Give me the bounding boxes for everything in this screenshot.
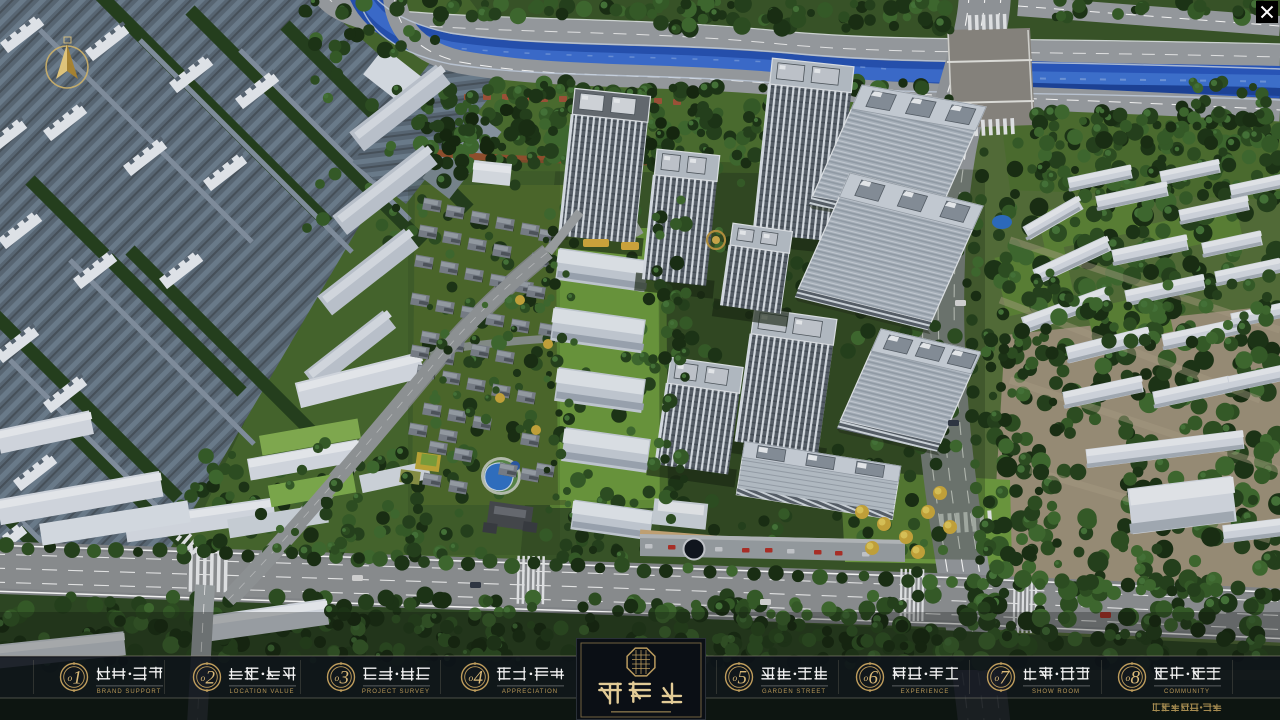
svg-text:1: 1 xyxy=(73,668,83,689)
svg-text:APPRECIATION: APPRECIATION xyxy=(502,689,558,695)
svg-text:8: 8 xyxy=(1131,668,1141,689)
svg-text:COMMUNITY: COMMUNITY xyxy=(1164,689,1210,695)
svg-text:LOCATION VALUE: LOCATION VALUE xyxy=(229,689,294,695)
svg-text:4: 4 xyxy=(474,668,484,689)
svg-text:2: 2 xyxy=(206,668,216,689)
svg-text:3: 3 xyxy=(339,668,350,689)
svg-text:SHOW ROOM: SHOW ROOM xyxy=(1032,689,1080,695)
svg-text:PROJECT SURVEY: PROJECT SURVEY xyxy=(362,689,430,695)
svg-text:5: 5 xyxy=(738,668,748,689)
svg-text:EXPERIENCE: EXPERIENCE xyxy=(901,689,950,695)
svg-text:GARDEN STREET: GARDEN STREET xyxy=(762,689,826,695)
svg-text:7: 7 xyxy=(1000,668,1011,689)
svg-text:BRAND SUPPORT: BRAND SUPPORT xyxy=(97,689,162,695)
svg-text:6: 6 xyxy=(869,668,879,689)
